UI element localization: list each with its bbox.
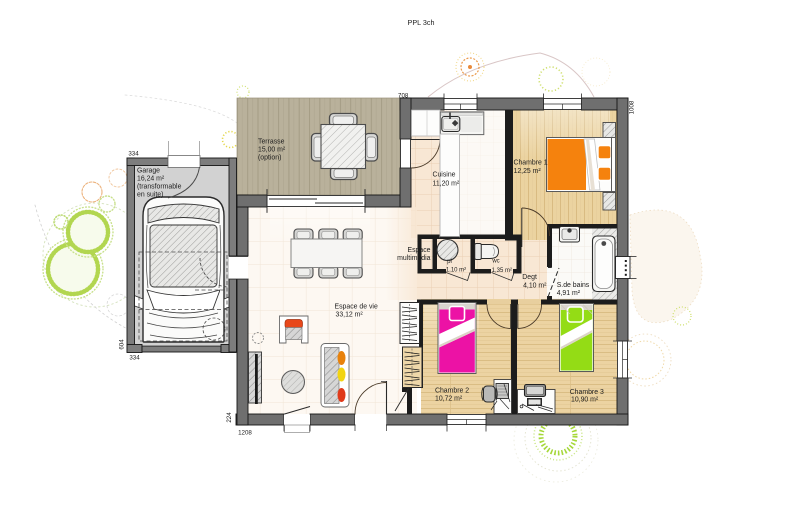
svg-text:10,90 m²: 10,90 m² <box>571 397 599 404</box>
svg-text:224: 224 <box>226 412 233 423</box>
svg-text:33,12 m²: 33,12 m² <box>336 312 364 319</box>
svg-text:Chambre 3: Chambre 3 <box>570 389 604 396</box>
svg-text:Espace de vie: Espace de vie <box>335 304 378 311</box>
svg-text:4,91 m²: 4,91 m² <box>557 290 581 297</box>
svg-text:Garage: Garage <box>137 168 160 175</box>
svg-text:Chambre 2: Chambre 2 <box>435 388 469 395</box>
svg-text:4,10 m²: 4,10 m² <box>523 283 547 290</box>
svg-text:334: 334 <box>129 355 140 362</box>
svg-text:Terrasse: Terrasse <box>258 139 285 146</box>
svg-text:604: 604 <box>119 339 126 350</box>
svg-text:pl: pl <box>447 259 452 265</box>
svg-text:(transformable: (transformable <box>137 184 182 191</box>
svg-text:Chambre 1: Chambre 1 <box>514 160 548 167</box>
svg-text:1,10 m²: 1,10 m² <box>446 268 466 274</box>
svg-text:15,00 m²: 15,00 m² <box>258 147 286 154</box>
svg-text:11,20 m²: 11,20 m² <box>433 181 460 188</box>
svg-text:334: 334 <box>128 151 139 158</box>
svg-text:1,35 m²: 1,35 m² <box>492 268 512 274</box>
svg-text:wc: wc <box>491 259 499 265</box>
svg-text:12,25 m²: 12,25 m² <box>514 168 542 175</box>
svg-text:en suite): en suite) <box>137 192 163 199</box>
svg-text:Espace: Espace <box>408 247 431 254</box>
svg-text:1008: 1008 <box>629 100 636 114</box>
svg-text:708: 708 <box>398 93 409 100</box>
svg-text:(option): (option) <box>258 155 281 162</box>
svg-text:Cuisine: Cuisine <box>433 172 456 179</box>
svg-text:multimédia: multimédia <box>397 255 430 262</box>
svg-text:1208: 1208 <box>238 430 252 437</box>
svg-text:Degt: Degt <box>522 274 537 281</box>
svg-text:S.de bains: S.de bains <box>557 282 590 289</box>
svg-text:16,24 m²: 16,24 m² <box>137 176 165 183</box>
svg-text:PPL 3ch: PPL 3ch <box>408 18 435 27</box>
svg-text:10,72 m²: 10,72 m² <box>435 396 463 403</box>
